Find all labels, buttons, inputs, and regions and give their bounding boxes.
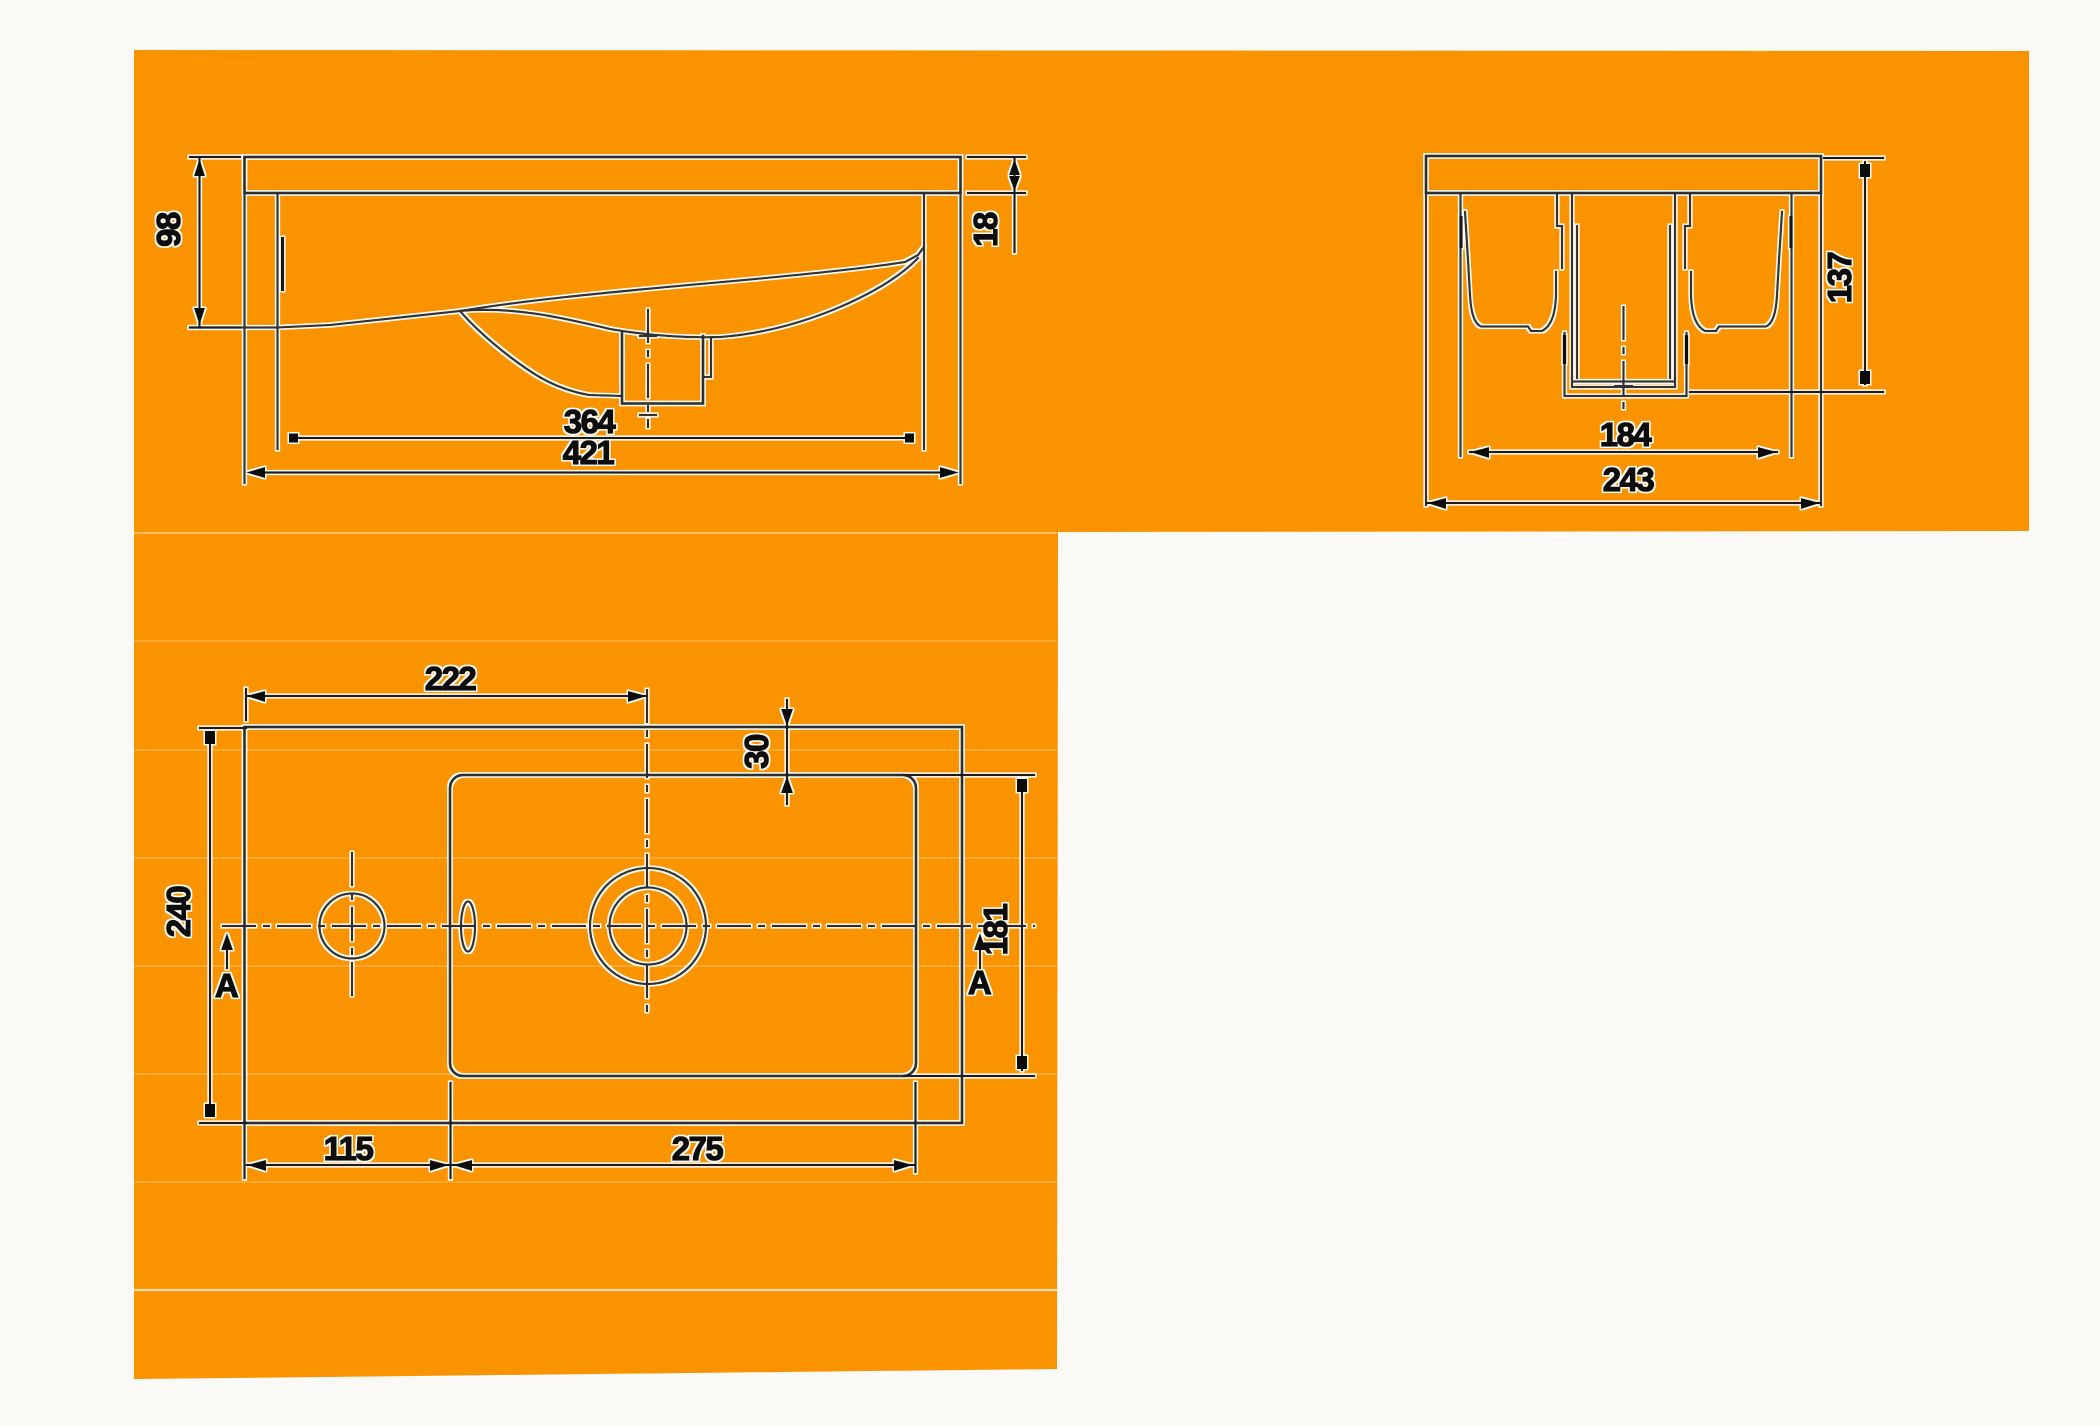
svg-text:421: 421 xyxy=(563,434,615,471)
svg-text:18: 18 xyxy=(967,212,1004,247)
svg-text:A: A xyxy=(968,964,991,1001)
svg-text:243: 243 xyxy=(1603,461,1655,498)
svg-text:30: 30 xyxy=(738,735,775,769)
svg-text:240: 240 xyxy=(160,887,197,938)
svg-text:275: 275 xyxy=(672,1130,724,1167)
svg-text:A: A xyxy=(215,967,238,1004)
svg-text:184: 184 xyxy=(1600,416,1653,453)
svg-text:98: 98 xyxy=(150,212,187,247)
svg-text:115: 115 xyxy=(324,1130,374,1167)
svg-text:137: 137 xyxy=(1821,253,1858,304)
svg-text:222: 222 xyxy=(425,660,477,697)
